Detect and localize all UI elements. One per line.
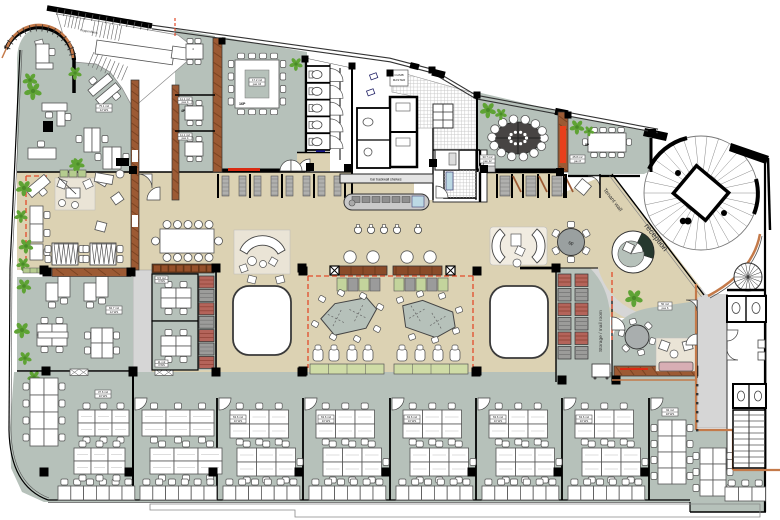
- svg-text:pax 16: pax 16: [253, 82, 262, 86]
- svg-text:8P: 8P: [585, 143, 590, 147]
- svg-text:12 WS: 12 WS: [100, 108, 109, 112]
- svg-text:3 WS: 3 WS: [158, 279, 165, 283]
- svg-text:Storage / mail room: Storage / mail room: [598, 310, 604, 352]
- svg-text:10 WS: 10 WS: [494, 419, 503, 423]
- svg-text:CLIMB: CLIMB: [394, 73, 403, 77]
- svg-text:pax 6: pax 6: [662, 306, 669, 310]
- svg-text:6p: 6p: [568, 241, 574, 246]
- svg-text:3 WS: 3 WS: [158, 363, 165, 367]
- svg-text:pax 4: pax 4: [182, 136, 189, 140]
- svg-text:10 WS: 10 WS: [234, 419, 243, 423]
- svg-text:bar backwall shelves: bar backwall shelves: [370, 178, 402, 182]
- svg-text:18 WS: 18 WS: [666, 412, 675, 416]
- svg-text:10 WS: 10 WS: [580, 419, 589, 423]
- svg-text:10 WS: 10 WS: [408, 419, 417, 423]
- svg-text:MASTER: MASTER: [393, 78, 406, 82]
- svg-text:pax 12: pax 12: [483, 159, 492, 163]
- svg-text:10 WS: 10 WS: [99, 394, 108, 398]
- svg-text:4P: 4P: [181, 109, 186, 113]
- svg-text:12 WS: 12 WS: [110, 310, 119, 314]
- svg-text:pax 8: pax 8: [574, 159, 581, 163]
- svg-text:10 WS: 10 WS: [322, 419, 331, 423]
- svg-text:16P: 16P: [239, 102, 246, 106]
- svg-text:pax 4: pax 4: [182, 100, 189, 104]
